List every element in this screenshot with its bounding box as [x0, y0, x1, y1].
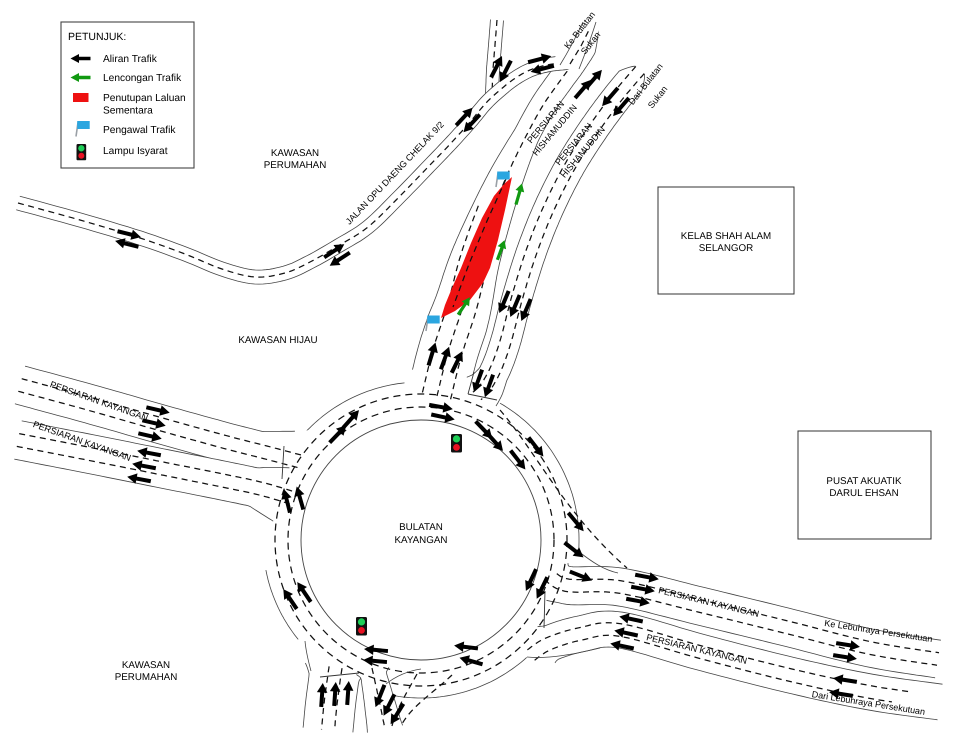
svg-text:KAWASAN: KAWASAN: [122, 660, 170, 671]
svg-text:Pengawal Trafik: Pengawal Trafik: [103, 125, 176, 136]
svg-text:Penutupan Laluan: Penutupan Laluan: [103, 93, 186, 104]
svg-text:KAWASAN: KAWASAN: [271, 148, 319, 159]
svg-text:Sementara: Sementara: [103, 106, 153, 117]
svg-text:PERUMAHAN: PERUMAHAN: [115, 672, 178, 683]
svg-text:PERUMAHAN: PERUMAHAN: [264, 160, 327, 171]
svg-text:DARUL EHSAN: DARUL EHSAN: [829, 488, 898, 499]
svg-text:KAYANGAN: KAYANGAN: [395, 535, 448, 546]
svg-text:Aliran Trafik: Aliran Trafik: [103, 54, 158, 65]
svg-text:KELAB SHAH ALAM: KELAB SHAH ALAM: [681, 231, 771, 242]
svg-text:Lampu Isyarat: Lampu Isyarat: [103, 146, 168, 157]
svg-text:PUSAT AKUATIK: PUSAT AKUATIK: [826, 476, 902, 487]
svg-text:PETUNJUK:: PETUNJUK:: [68, 31, 126, 43]
svg-text:Lencongan Trafik: Lencongan Trafik: [103, 73, 182, 84]
svg-text:SELANGOR: SELANGOR: [699, 243, 753, 254]
svg-text:KAWASAN HIJAU: KAWASAN HIJAU: [238, 335, 317, 346]
svg-text:BULATAN: BULATAN: [399, 522, 443, 533]
